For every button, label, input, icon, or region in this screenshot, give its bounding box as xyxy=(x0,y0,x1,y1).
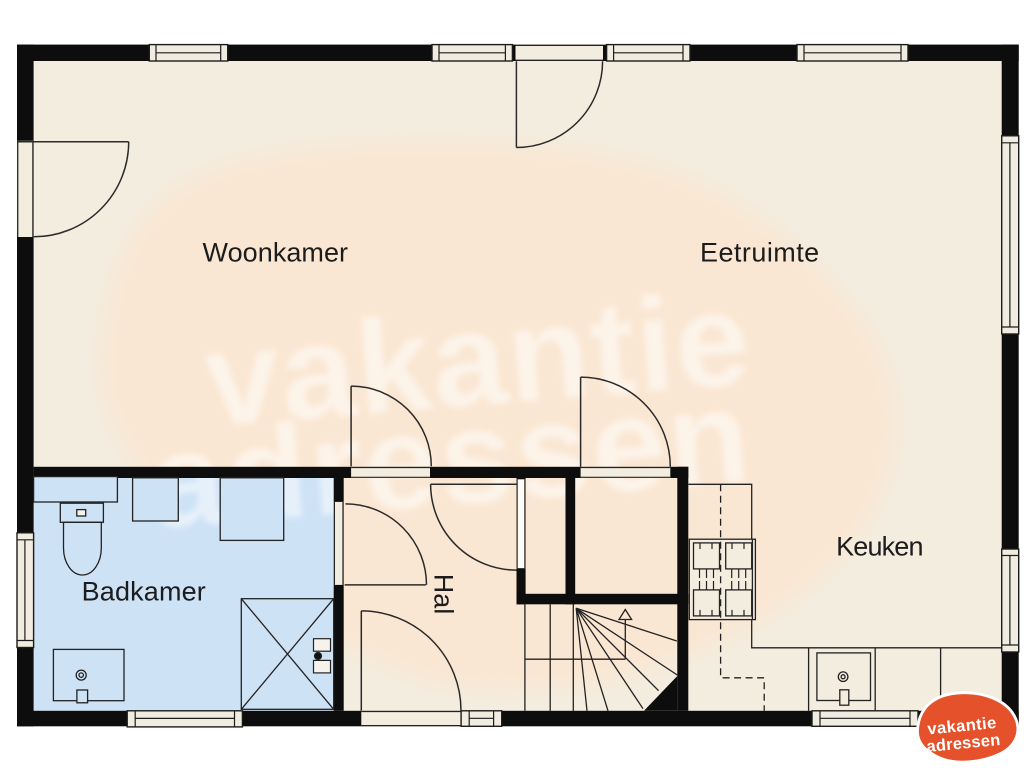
svg-text:Eetruimte: Eetruimte xyxy=(700,238,819,268)
svg-text:Hal: Hal xyxy=(429,574,459,615)
svg-text:Badkamer: Badkamer xyxy=(82,576,206,606)
svg-text:Keuken: Keuken xyxy=(836,532,923,562)
svg-text:Woonkamer: Woonkamer xyxy=(203,238,349,268)
